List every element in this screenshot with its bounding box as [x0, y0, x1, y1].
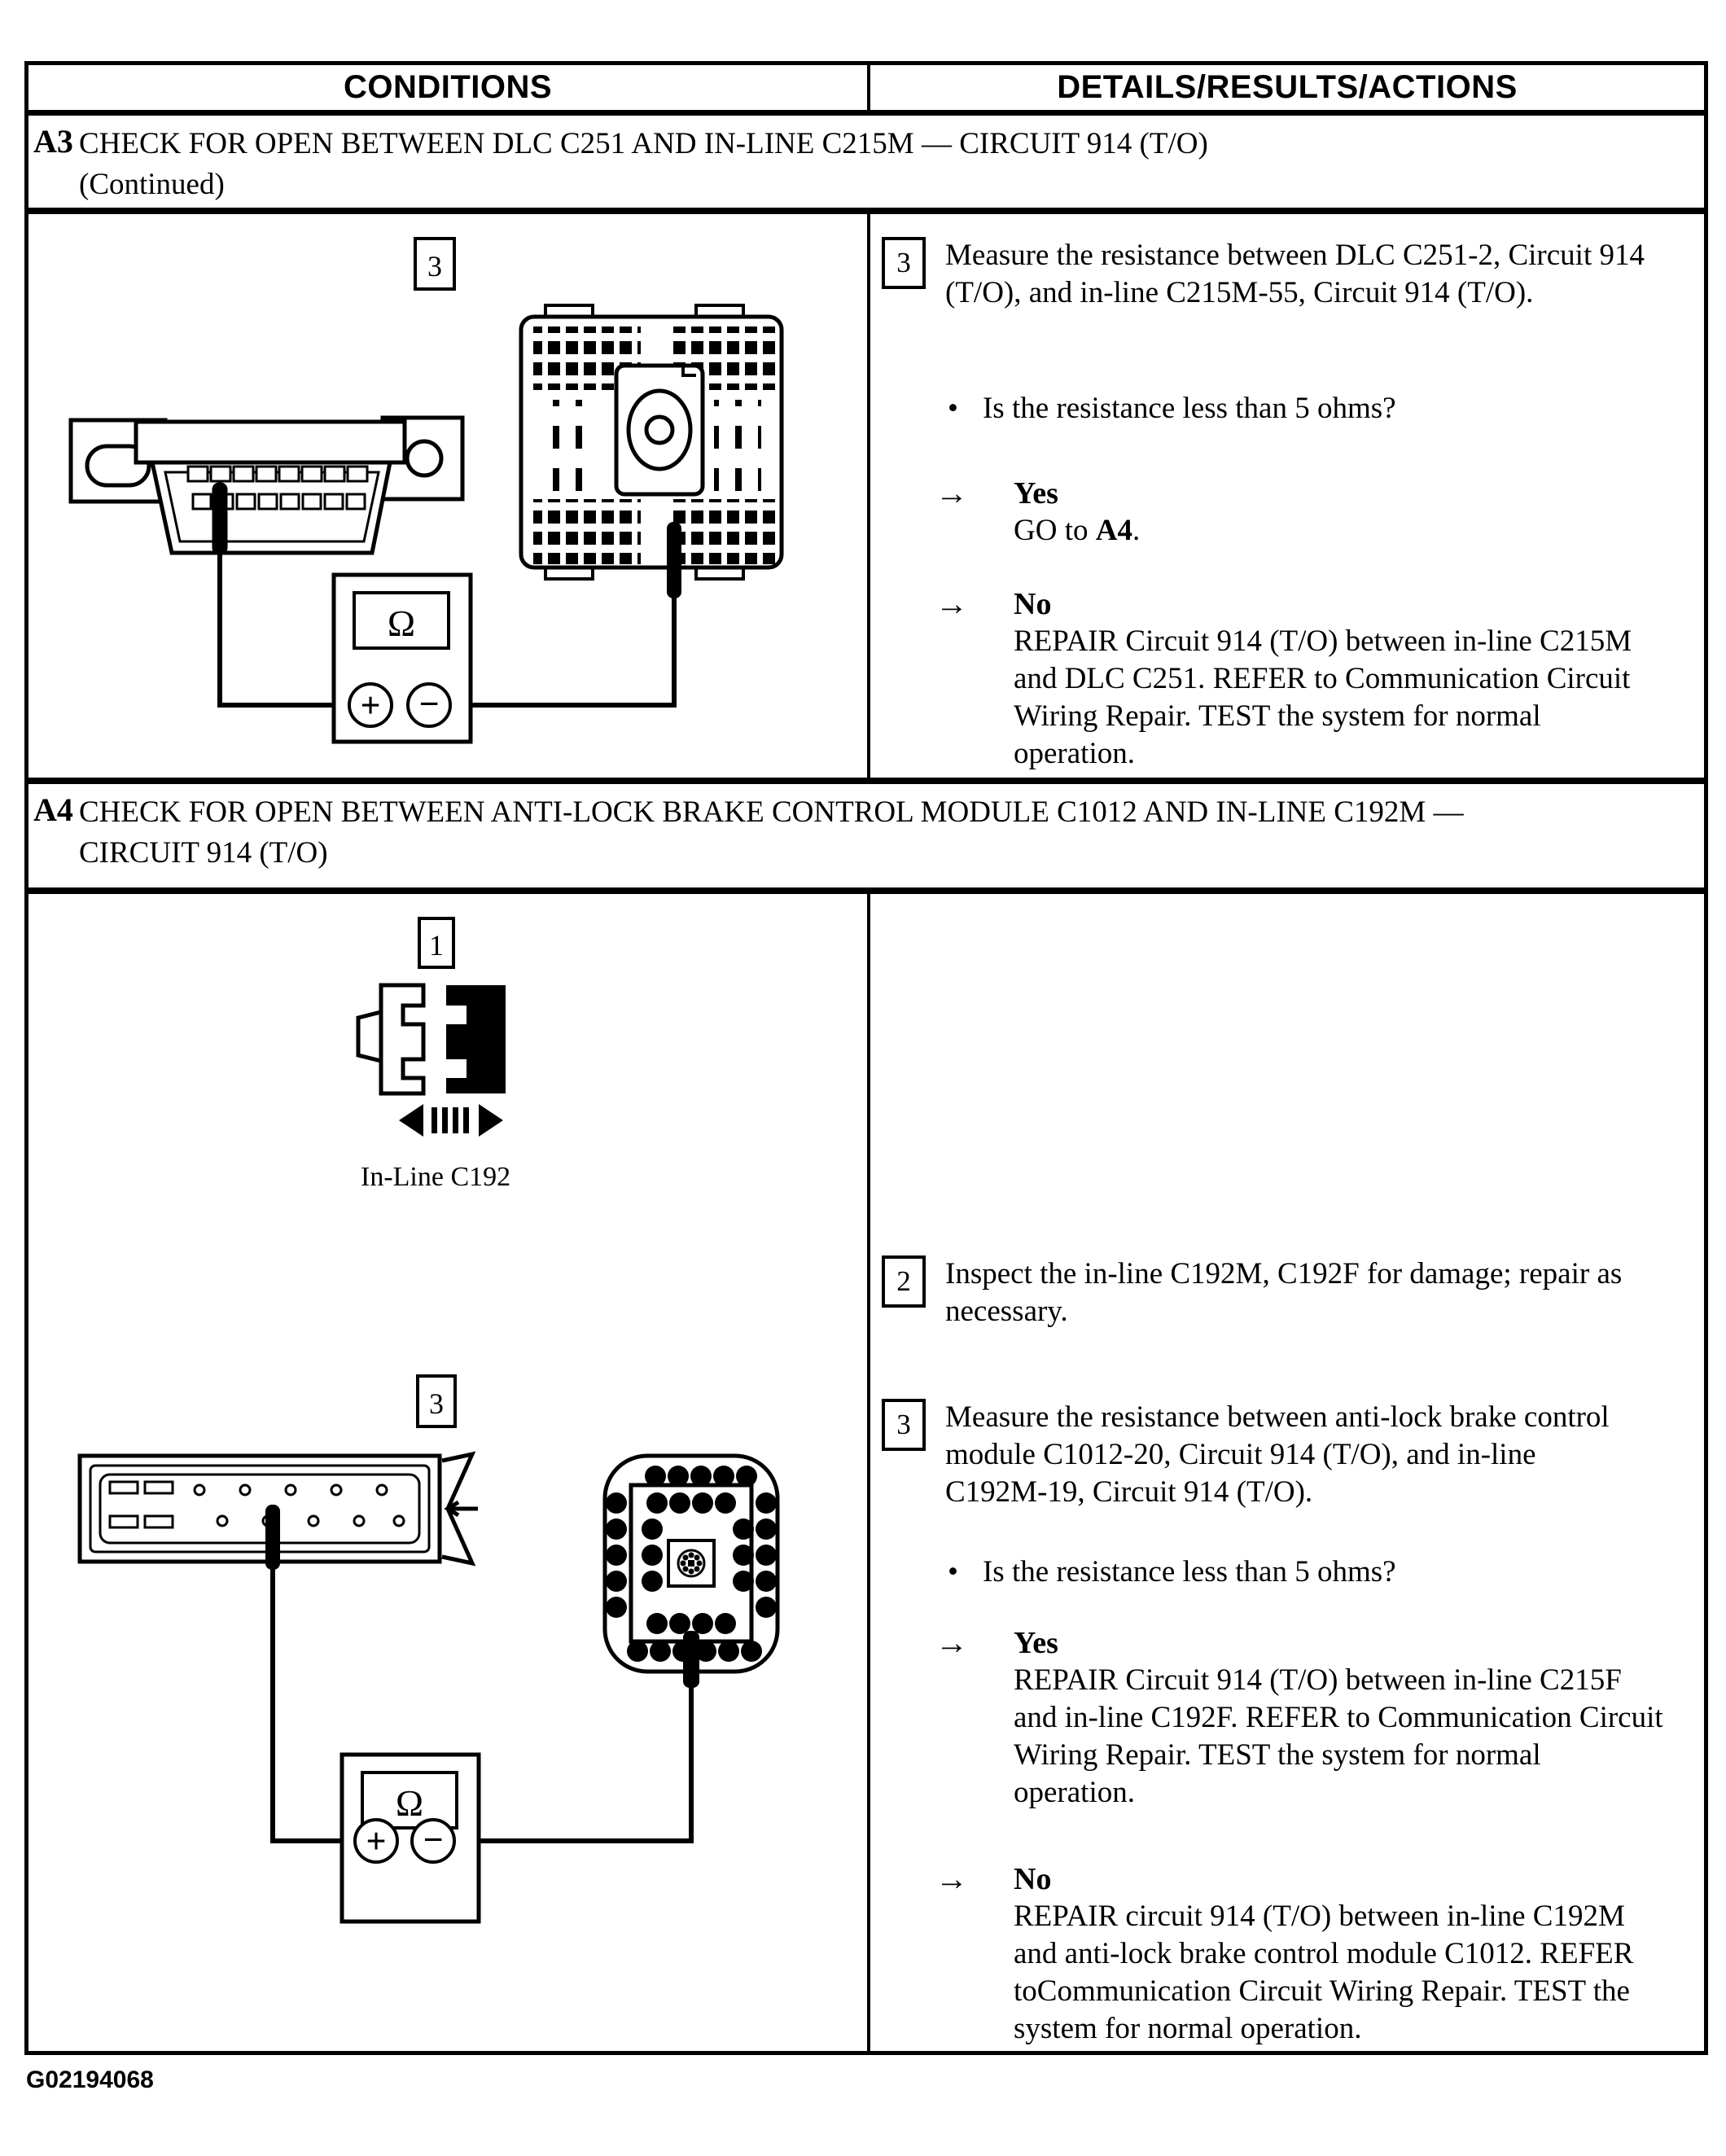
yes-label: Yes: [1014, 475, 1665, 512]
yes-action: REPAIR Circuit 914 (T/O) between in-line…: [1014, 1662, 1665, 1812]
a4-content-row: 1 In-Line C192: [28, 894, 1704, 2051]
step-number-box: 2: [882, 1255, 926, 1308]
a4-diagrams: 1 In-Line C192: [28, 894, 867, 2051]
a3-title: CHECK FOR OPEN BETWEEN DLC C251 AND IN-L…: [79, 124, 1512, 205]
step-instruction: Inspect the in-line C192M, C192F for dam…: [945, 1255, 1645, 1330]
a3-yes-branch: → Yes GO to A4.: [870, 475, 1665, 550]
conditions-header: CONDITIONS: [28, 65, 867, 110]
a3-step-label: A3: [33, 122, 73, 160]
a3-details-cell: 3 Measure the resistance between DLC C25…: [870, 214, 1704, 778]
center-rosette: [668, 1540, 714, 1586]
a4-question-block: • Is the resistance less than 5 ohms?: [870, 1553, 1650, 1591]
yes-action: GO to A4.: [1014, 512, 1665, 550]
mating-arrow-icon: [399, 1104, 503, 1137]
step-3-marker: 3: [418, 1376, 455, 1426]
a3-measurement-diagram: 3: [28, 214, 867, 784]
connector-wedge: [442, 1454, 478, 1563]
a3-conditions-cell: 3: [28, 214, 870, 778]
a3-continued-text: (Continued): [79, 168, 225, 201]
conditions-header-cell: CONDITIONS: [28, 65, 870, 110]
arrow-icon: →: [935, 475, 1014, 512]
bullet-icon: •: [948, 390, 958, 427]
a4-step-2-block: 2 Inspect the in-line C192M, C192F for d…: [870, 1255, 1645, 1330]
manual-page: CONDITIONS DETAILS/RESULTS/ACTIONS A3 CH…: [0, 0, 1726, 2156]
ohmmeter-diagram: Ω + −: [342, 1755, 479, 1922]
yes-label: Yes: [1014, 1624, 1665, 1662]
a4-title-row: A4 CHECK FOR OPEN BETWEEN ANTI-LOCK BRAK…: [28, 784, 1704, 894]
ohm-symbol: Ω: [396, 1782, 423, 1824]
svg-text:3: 3: [427, 250, 442, 283]
no-label: No: [1014, 1860, 1665, 1898]
pinpoint-test-table: CONDITIONS DETAILS/RESULTS/ACTIONS A3 CH…: [24, 61, 1708, 2055]
no-label: No: [1014, 585, 1665, 623]
a3-step-3-block: 3 Measure the resistance between DLC C25…: [870, 237, 1645, 312]
a4-no-branch: → No REPAIR circuit 914 (T/O) between in…: [870, 1860, 1665, 2048]
no-action: REPAIR circuit 914 (T/O) between in-line…: [1014, 1898, 1665, 2048]
arrow-icon: →: [935, 1860, 1014, 1898]
probe-icon: [265, 1505, 280, 1570]
step-instruction: Measure the resistance between anti-lock…: [945, 1399, 1645, 1511]
minus-terminal: −: [418, 684, 439, 724]
a4-details-cell: 2 Inspect the in-line C192M, C192F for d…: [870, 894, 1704, 2051]
dlc-connector-diagram: [71, 418, 462, 554]
yes-action-target: A4: [1096, 514, 1132, 547]
details-header: DETAILS/RESULTS/ACTIONS: [870, 65, 1704, 110]
details-header-cell: DETAILS/RESULTS/ACTIONS: [870, 65, 1704, 110]
arrow-icon: →: [935, 1624, 1014, 1662]
a3-no-branch: → No REPAIR Circuit 914 (T/O) between in…: [870, 585, 1665, 773]
a4-yes-branch: → Yes REPAIR Circuit 914 (T/O) between i…: [870, 1624, 1665, 1812]
a3-question-block: • Is the resistance less than 5 ohms?: [870, 390, 1650, 427]
probe-icon: [212, 483, 227, 554]
plus-terminal: +: [366, 1821, 386, 1861]
step-instruction: Measure the resistance between DLC C251-…: [945, 237, 1645, 312]
ohmmeter-diagram: Ω + −: [334, 575, 471, 742]
yes-action-suffix: .: [1132, 514, 1140, 547]
svg-text:1: 1: [429, 929, 444, 962]
module-connector-diagram: [521, 305, 782, 598]
figure-id: G02194068: [26, 2066, 154, 2094]
a3-content-row: 3: [28, 214, 1704, 784]
ohm-symbol: Ω: [388, 603, 415, 644]
table-header-row: CONDITIONS DETAILS/RESULTS/ACTIONS: [28, 65, 1704, 116]
abs-module-connector-diagram: [80, 1454, 478, 1570]
step-number-box: 3: [882, 237, 926, 289]
arrow-icon: →: [935, 585, 1014, 623]
step-3-marker: 3: [415, 239, 454, 289]
a4-conditions-cell: 1 In-Line C192: [28, 894, 870, 2051]
probe-icon: [667, 522, 681, 598]
question-text: Is the resistance less than 5 ohms?: [983, 390, 1650, 427]
bullet-icon: •: [948, 1553, 958, 1591]
step-number-box: 3: [882, 1399, 926, 1451]
question-text: Is the resistance less than 5 ohms?: [983, 1553, 1650, 1591]
a4-step-3-block: 3 Measure the resistance between anti-lo…: [870, 1399, 1645, 1511]
a3-title-text: CHECK FOR OPEN BETWEEN DLC C251 AND IN-L…: [79, 127, 1208, 160]
a3-title-row: A3 CHECK FOR OPEN BETWEEN DLC C251 AND I…: [28, 116, 1704, 214]
round-inline-connector-diagram: [605, 1456, 778, 1688]
svg-text:3: 3: [429, 1387, 444, 1420]
inline-connector-diagram: In-Line C192: [358, 985, 510, 1192]
probe-icon: [683, 1631, 699, 1688]
a4-step-label: A4: [33, 791, 73, 829]
yes-action-prefix: GO to: [1014, 514, 1096, 547]
inline-connector-caption: In-Line C192: [361, 1162, 510, 1192]
no-action: REPAIR Circuit 914 (T/O) between in-line…: [1014, 623, 1665, 773]
minus-terminal: −: [423, 1820, 443, 1860]
step-1-marker: 1: [419, 918, 453, 967]
a4-title: CHECK FOR OPEN BETWEEN ANTI-LOCK BRAKE C…: [79, 792, 1512, 874]
plus-terminal: +: [360, 686, 380, 725]
